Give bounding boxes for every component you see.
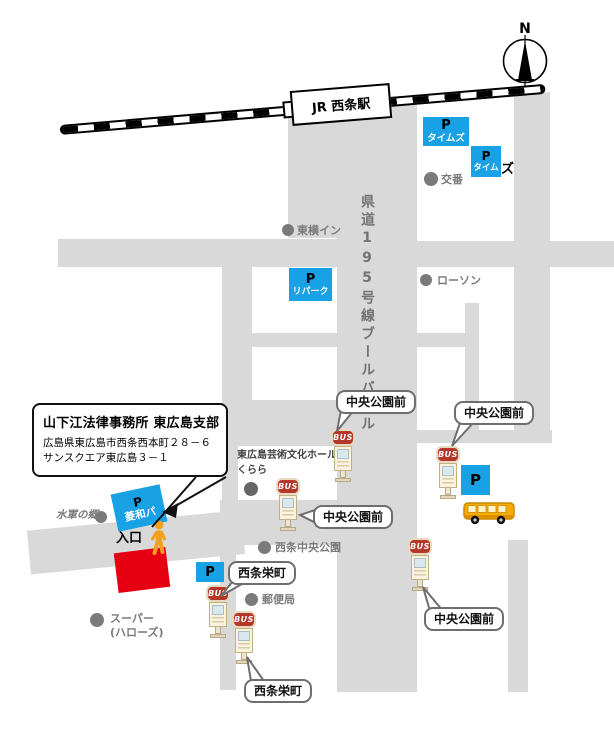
- lawson-label: ローソン: [437, 274, 481, 288]
- parking-chuo: P: [461, 465, 490, 495]
- chuo-park-dot: [258, 541, 271, 554]
- callout-chuo-koen-mae-1: 中央公園前: [336, 390, 416, 414]
- bus-stop-chuo-c: BUS: [436, 446, 460, 499]
- parking-times-2: P タイム ズ: [471, 146, 501, 177]
- hall-dot: [244, 482, 258, 496]
- bus-icon: [463, 501, 515, 525]
- bus-sign: BUS: [232, 611, 256, 628]
- bus-stop-window: [414, 558, 426, 568]
- parking-p-icon: P: [306, 273, 316, 286]
- compass-icon: [498, 34, 552, 88]
- bus-sign: BUS: [331, 429, 355, 446]
- access-map: JR 西条駅 N 県道195号線ブールバール P タイムズ P タイム ズ P …: [0, 0, 614, 729]
- road-horizontal-left: [58, 239, 337, 267]
- bus-stop-chuo-d: BUS: [408, 538, 432, 591]
- bus-sign: BUS: [276, 478, 300, 495]
- parking-p-icon: P: [470, 473, 481, 488]
- hall-line2: くらら: [237, 465, 337, 478]
- bus-stop-sakae-g: BUS: [232, 611, 256, 664]
- parking-times-2-label: タイム: [473, 164, 498, 173]
- lawson-dot: [420, 274, 432, 286]
- bus-stop-window: [337, 449, 349, 459]
- office-address-1: 広島県東広島市西条西本町２８－６: [43, 436, 217, 451]
- hall-label: 東広島芸術文化ホール くらら: [237, 450, 337, 477]
- parking-repark-label: リパーク: [292, 288, 328, 297]
- callout-saijo-sakaemachi-2: 西条栄町: [244, 679, 312, 703]
- toyoko-inn-dot: [282, 224, 294, 236]
- post-office-dot: [245, 593, 258, 606]
- koban-label: 交番: [441, 173, 463, 187]
- hall-line1: 東広島芸術文化ホール: [237, 450, 337, 463]
- parking-p-icon: P: [132, 495, 143, 509]
- parking-p-icon: P: [205, 566, 215, 579]
- bus-stop-window: [212, 605, 224, 615]
- road-station-plaza: [288, 112, 337, 238]
- bus-stop-chuo-b: BUS: [276, 478, 300, 531]
- parking-sakaemachi: P: [196, 562, 224, 582]
- bus-stop-window: [282, 498, 294, 508]
- station-label: JR 西条駅: [311, 93, 371, 117]
- bus-sign: BUS: [408, 538, 432, 555]
- bus-stop-chuo-a: BUS: [331, 429, 355, 482]
- post-office-label: 郵便局: [262, 593, 295, 607]
- callout-saijo-sakaemachi-1: 西条栄町: [228, 561, 296, 585]
- bus-stop-sakae-f: BUS: [206, 585, 230, 638]
- suigun-dot: [95, 511, 107, 523]
- road-vertical-station-east: [514, 92, 550, 443]
- callout-chuo-koen-mae-2: 中央公園前: [313, 505, 393, 529]
- person-icon: [146, 520, 170, 558]
- bus-sign: BUS: [206, 585, 230, 602]
- parking-times-1-label: タイムズ: [427, 134, 465, 144]
- suigun-label: 水軍の郷: [56, 509, 98, 522]
- supermarket-label: スーパー (ハローズ): [110, 612, 164, 640]
- koban-dot: [424, 172, 438, 186]
- road-horizontal-mid-right: [417, 430, 552, 443]
- road-cross-right: [417, 333, 467, 347]
- road-vertical-left: [222, 267, 252, 420]
- office-address-2: サンスクエア東広島３－１: [43, 451, 217, 466]
- parking-p-icon: P: [441, 119, 451, 132]
- callout-chuo-koen-mae-4: 中央公園前: [424, 607, 504, 631]
- supermarket-line1: スーパー: [110, 612, 164, 626]
- parking-repark: P リパーク: [289, 268, 332, 301]
- toyoko-inn-label: 東横イン: [297, 224, 341, 238]
- bus-stop-window: [442, 466, 454, 476]
- road-cross-left: [252, 333, 337, 347]
- parking-times-2-overflow: ズ: [501, 163, 514, 176]
- chuo-park-label: 西条中央公園: [275, 541, 341, 555]
- office-callout: 山下江法律事務所 東広島支部 広島県東広島市西条西本町２８－６ サンスクエア東広…: [32, 403, 228, 477]
- entrance-label: 入口: [116, 527, 142, 546]
- office-title: 山下江法律事務所 東広島支部: [43, 412, 217, 431]
- bus-stop-window: [238, 631, 250, 641]
- parking-p-icon: P: [482, 150, 491, 162]
- road-intersection-upper: [228, 400, 337, 446]
- supermarket-dot: [90, 613, 104, 627]
- callout-chuo-koen-mae-3: 中央公園前: [454, 401, 534, 425]
- supermarket-line2: (ハローズ): [110, 626, 164, 640]
- road-vertical-bottom-right: [508, 540, 528, 692]
- parking-times-1: P タイムズ: [423, 117, 469, 146]
- bus-sign: BUS: [436, 446, 460, 463]
